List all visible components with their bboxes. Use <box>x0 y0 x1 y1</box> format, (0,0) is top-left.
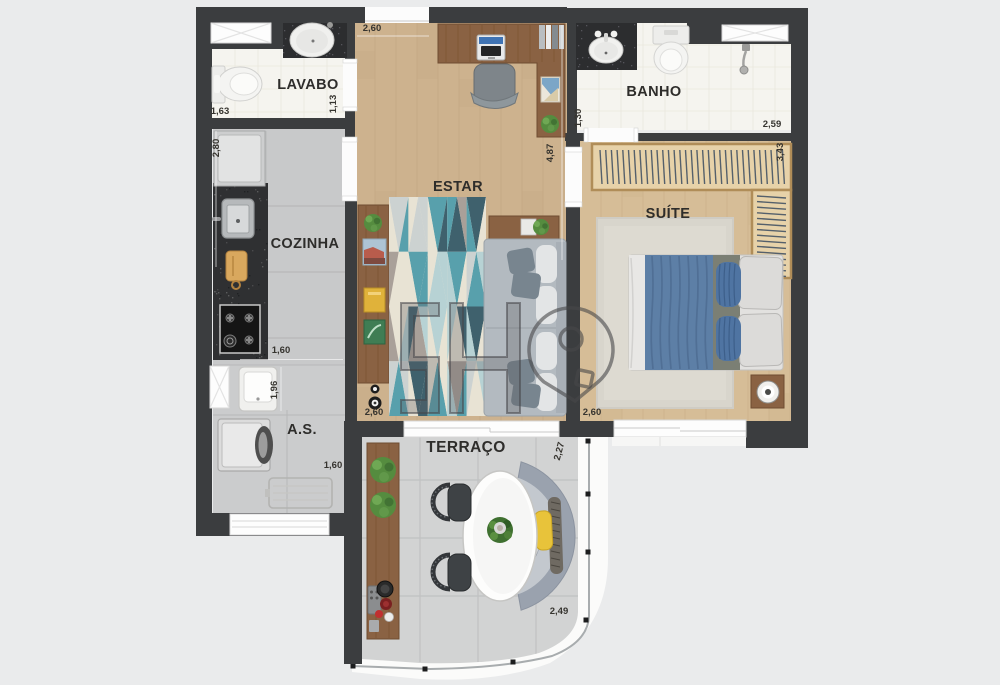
svg-text:2,59: 2,59 <box>763 119 782 130</box>
svg-text:2,60: 2,60 <box>363 23 382 34</box>
svg-text:ESTAR: ESTAR <box>433 179 483 195</box>
svg-text:1,63: 1,63 <box>211 106 230 117</box>
svg-text:2,60: 2,60 <box>583 407 602 418</box>
svg-text:BANHO: BANHO <box>626 84 681 100</box>
svg-text:1,60: 1,60 <box>272 345 291 356</box>
svg-text:2,60: 2,60 <box>365 407 384 418</box>
svg-text:4,87: 4,87 <box>545 144 556 163</box>
svg-text:SUÍTE: SUÍTE <box>646 205 691 222</box>
svg-text:3,43: 3,43 <box>775 143 786 162</box>
svg-text:COZINHA: COZINHA <box>271 236 340 252</box>
svg-text:1,30: 1,30 <box>573 109 584 128</box>
svg-text:TERRAÇO: TERRAÇO <box>426 439 505 456</box>
svg-text:2,80: 2,80 <box>211 139 222 158</box>
svg-text:1,13: 1,13 <box>328 95 339 114</box>
svg-text:2,49: 2,49 <box>550 606 569 617</box>
svg-text:1,96: 1,96 <box>269 381 280 400</box>
svg-text:A.S.: A.S. <box>287 422 317 438</box>
svg-text:LAVABO: LAVABO <box>277 77 338 93</box>
svg-text:1,60: 1,60 <box>324 460 343 471</box>
